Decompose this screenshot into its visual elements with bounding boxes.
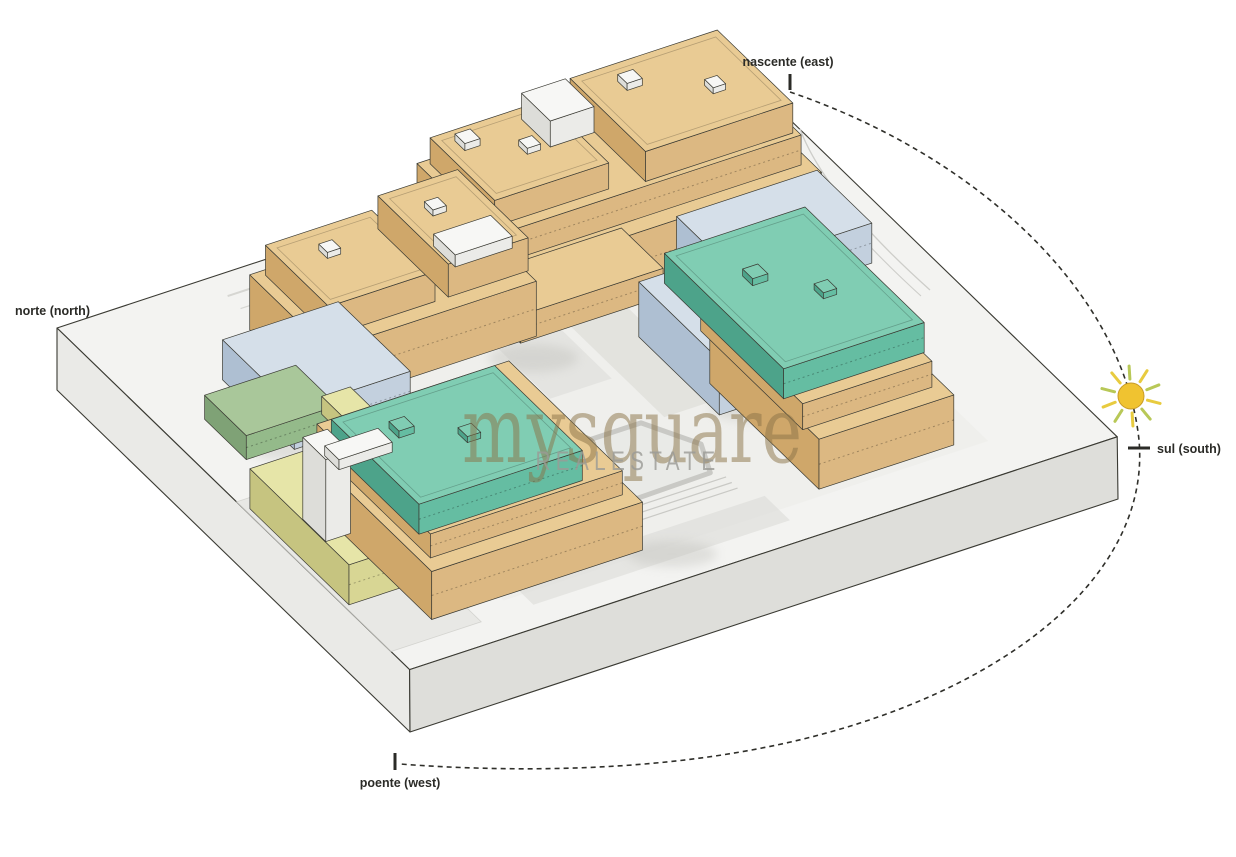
watermark-subtitle: REALESTATE [536,446,721,476]
west-label: poente (west) [360,776,441,790]
site-plan-diagram: nascente (east) norte (north) sul (south… [0,0,1236,857]
north-label: norte (north) [15,304,90,318]
axonometric-site-illustration: nascente (east) norte (north) sul (south… [0,0,1236,857]
east-label: nascente (east) [742,55,833,69]
sun-icon [1102,366,1160,426]
south-label: sul (south) [1157,442,1221,456]
